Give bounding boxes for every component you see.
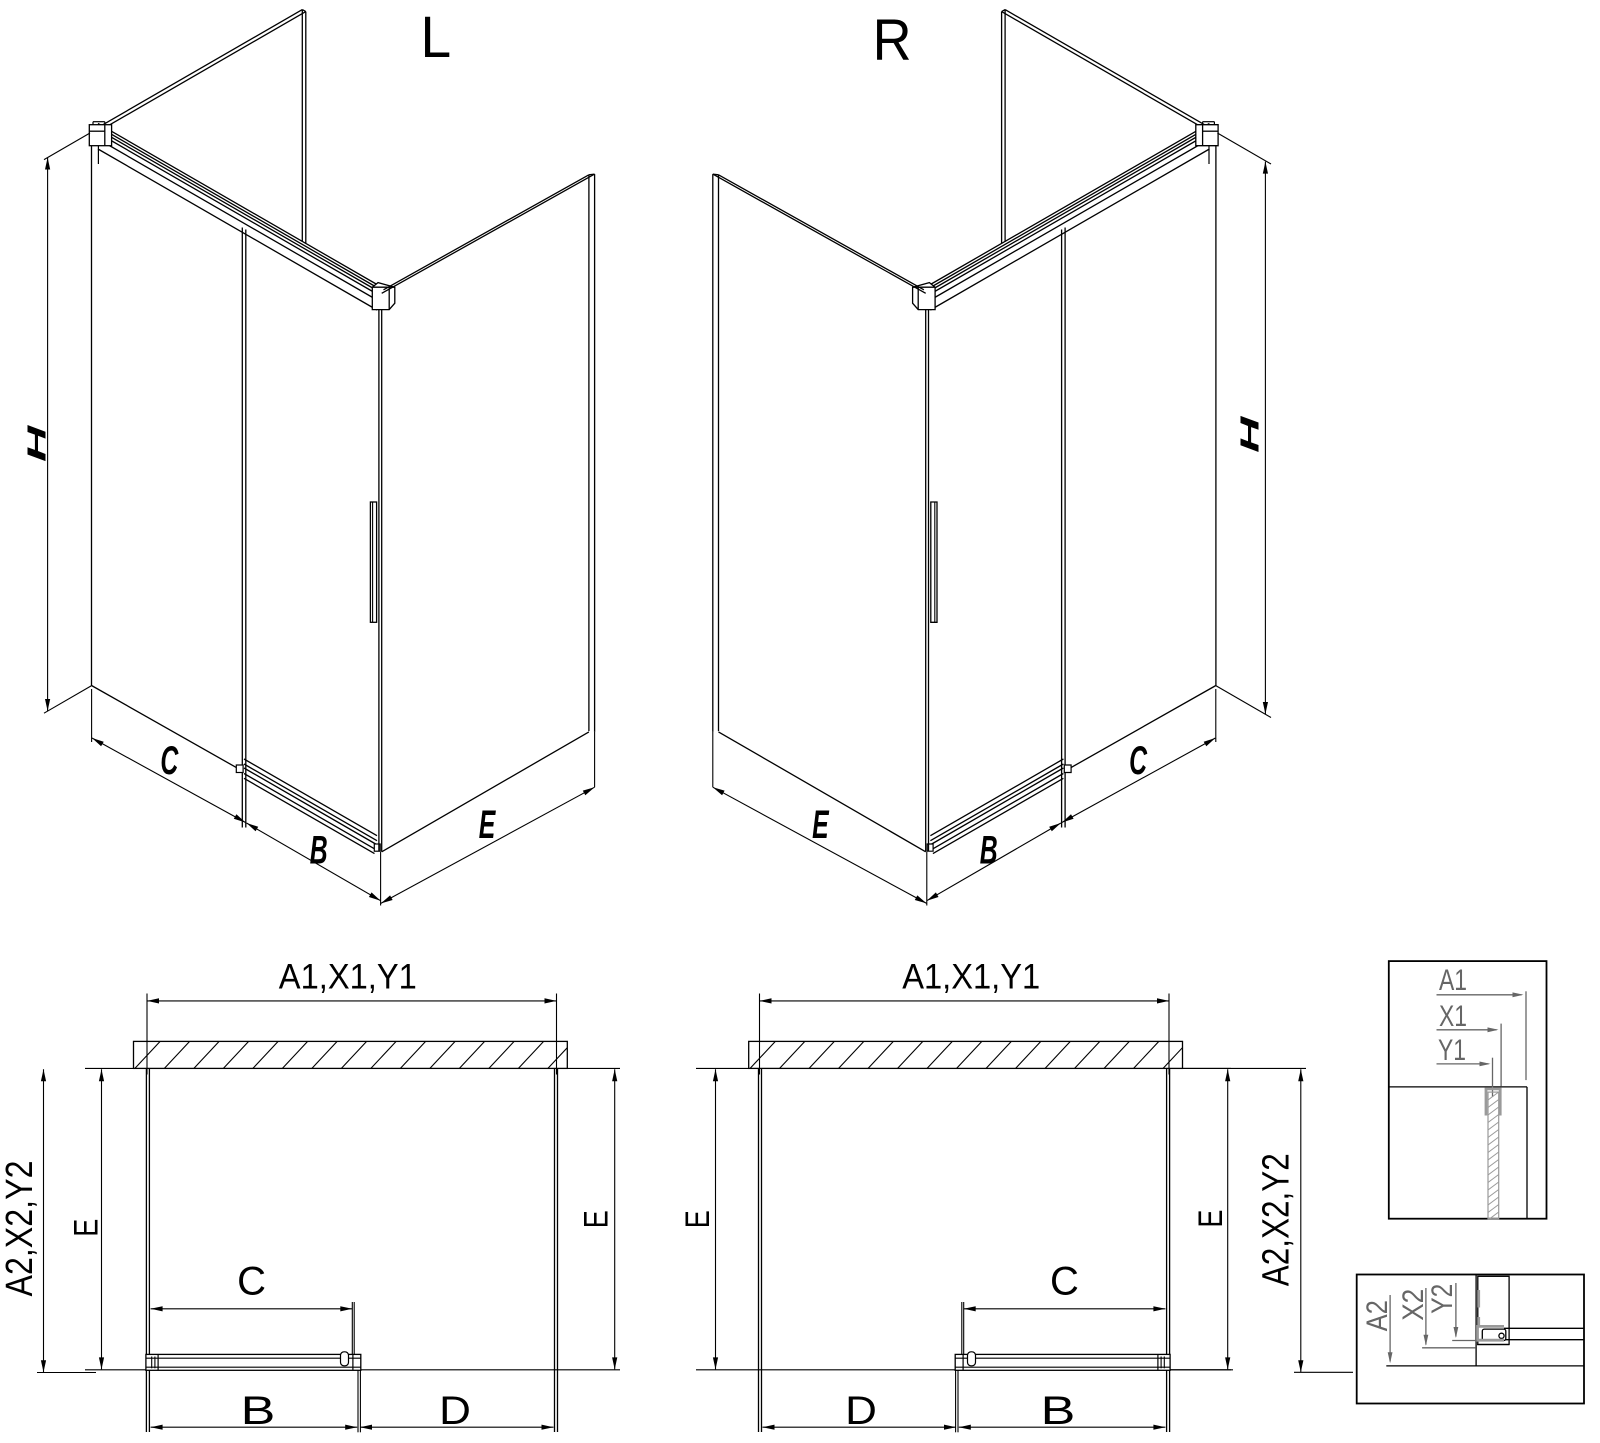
svg-text:H: H	[23, 424, 52, 462]
svg-text:E: E	[1192, 1210, 1230, 1228]
svg-text:E: E	[68, 1219, 106, 1237]
svg-text:A1,X1,Y1: A1,X1,Y1	[279, 958, 417, 997]
svg-text:C: C	[237, 1259, 266, 1303]
svg-text:E: E	[679, 1210, 717, 1228]
svg-text:E: E	[577, 1210, 615, 1228]
svg-text:A2,X2,Y2: A2,X2,Y2	[1256, 1153, 1298, 1286]
svg-text:H: H	[1235, 415, 1264, 453]
svg-text:A1,X1,Y1: A1,X1,Y1	[902, 958, 1040, 997]
svg-text:D: D	[845, 1388, 877, 1433]
svg-text:C: C	[1129, 739, 1148, 783]
svg-text:A2: A2	[1361, 1300, 1394, 1331]
svg-text:A2,X2,Y2: A2,X2,Y2	[0, 1161, 41, 1297]
svg-text:Y2: Y2	[1426, 1284, 1459, 1314]
svg-text:B: B	[980, 828, 998, 872]
svg-text:B: B	[241, 1388, 276, 1433]
svg-text:R: R	[873, 7, 912, 72]
svg-text:Y1: Y1	[1438, 1034, 1466, 1067]
svg-text:E: E	[812, 803, 830, 847]
svg-text:L: L	[421, 5, 452, 70]
svg-text:C: C	[1050, 1259, 1079, 1303]
svg-text:B: B	[1041, 1388, 1076, 1433]
svg-text:B: B	[310, 828, 328, 872]
svg-text:E: E	[479, 803, 497, 847]
svg-text:X2: X2	[1397, 1289, 1430, 1321]
svg-text:A1: A1	[1439, 964, 1467, 997]
svg-text:C: C	[160, 739, 179, 783]
svg-text:X1: X1	[1439, 1000, 1467, 1033]
svg-text:D: D	[439, 1388, 471, 1433]
